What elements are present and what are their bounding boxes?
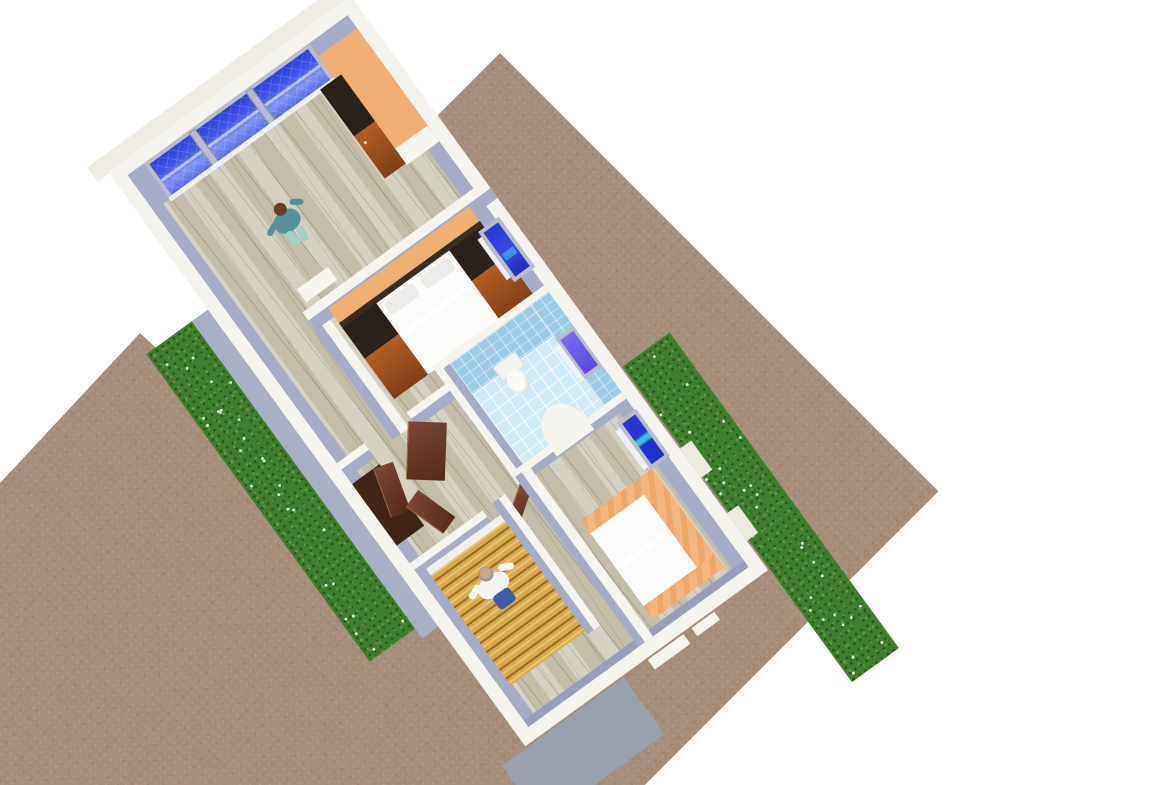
grass-flower bbox=[323, 528, 327, 532]
grass-flower bbox=[286, 507, 290, 511]
grass-flower bbox=[191, 356, 195, 360]
grass-flower bbox=[228, 381, 232, 385]
render-canvas bbox=[0, 0, 1170, 785]
grass-flower bbox=[210, 380, 214, 384]
grass-flower bbox=[165, 362, 169, 366]
grass-flower bbox=[880, 640, 884, 644]
grass-flower bbox=[291, 508, 295, 512]
grass-flower bbox=[344, 617, 348, 621]
grass-flower bbox=[799, 545, 803, 549]
grass-flower bbox=[278, 484, 282, 488]
grass-flower bbox=[812, 560, 816, 564]
grass-flower bbox=[242, 436, 246, 440]
grass-flower bbox=[721, 481, 725, 485]
grass-flower bbox=[738, 436, 742, 440]
grass-flower bbox=[748, 484, 752, 488]
grass-flower bbox=[652, 355, 656, 359]
grass-flower bbox=[820, 573, 824, 577]
grass-flower bbox=[841, 623, 845, 627]
grass-flower bbox=[858, 604, 862, 608]
grass-flower bbox=[400, 619, 404, 623]
wardrobe-handle bbox=[363, 141, 367, 145]
grass-flower bbox=[202, 416, 206, 420]
grass-flower bbox=[237, 417, 241, 421]
grass-flower bbox=[239, 448, 243, 452]
grass-flower bbox=[821, 617, 825, 621]
grass-flower bbox=[205, 423, 209, 427]
woman-arm-right bbox=[290, 199, 304, 205]
grass-flower bbox=[801, 541, 805, 545]
grass-flower bbox=[324, 583, 328, 587]
grass-flower bbox=[352, 614, 356, 618]
grass-flower bbox=[331, 581, 335, 585]
grass-flower bbox=[371, 647, 375, 651]
grass-flower bbox=[755, 493, 759, 497]
grass-flower bbox=[688, 430, 692, 434]
grass-flower bbox=[685, 382, 689, 386]
grass-flower bbox=[718, 492, 722, 496]
grass-flower bbox=[754, 506, 758, 510]
grass-flower bbox=[849, 615, 853, 619]
grass-flower bbox=[705, 477, 709, 481]
hall-door-open-1 bbox=[406, 421, 447, 480]
grass-flower bbox=[718, 466, 722, 470]
grass-flower bbox=[722, 419, 726, 423]
grass-flower bbox=[250, 484, 254, 488]
grass-flower bbox=[659, 412, 663, 416]
grass-flower bbox=[808, 609, 812, 613]
grass-flower bbox=[277, 493, 281, 497]
grass-flower bbox=[851, 671, 855, 675]
grass-flower bbox=[832, 613, 836, 617]
grass-flower bbox=[354, 632, 358, 636]
grass-flower bbox=[851, 655, 855, 659]
grass-flower bbox=[185, 366, 189, 370]
grass-flower bbox=[808, 596, 812, 600]
grass-flower bbox=[742, 488, 746, 492]
